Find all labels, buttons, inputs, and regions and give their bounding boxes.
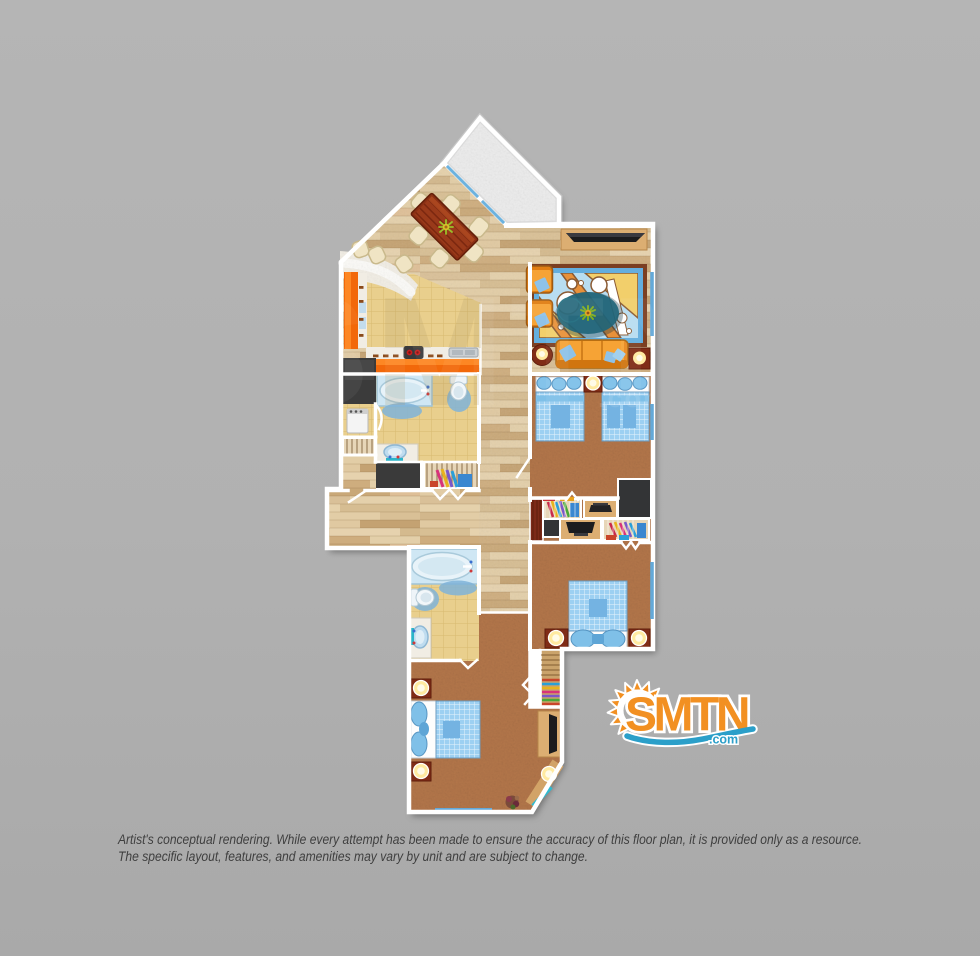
svg-text:Artist's conceptual rendering.: Artist's conceptual rendering. While eve… [117,832,862,847]
svg-text:.com: .com [709,733,738,747]
svg-text:The specific layout, features,: The specific layout, features, and ameni… [118,849,588,864]
